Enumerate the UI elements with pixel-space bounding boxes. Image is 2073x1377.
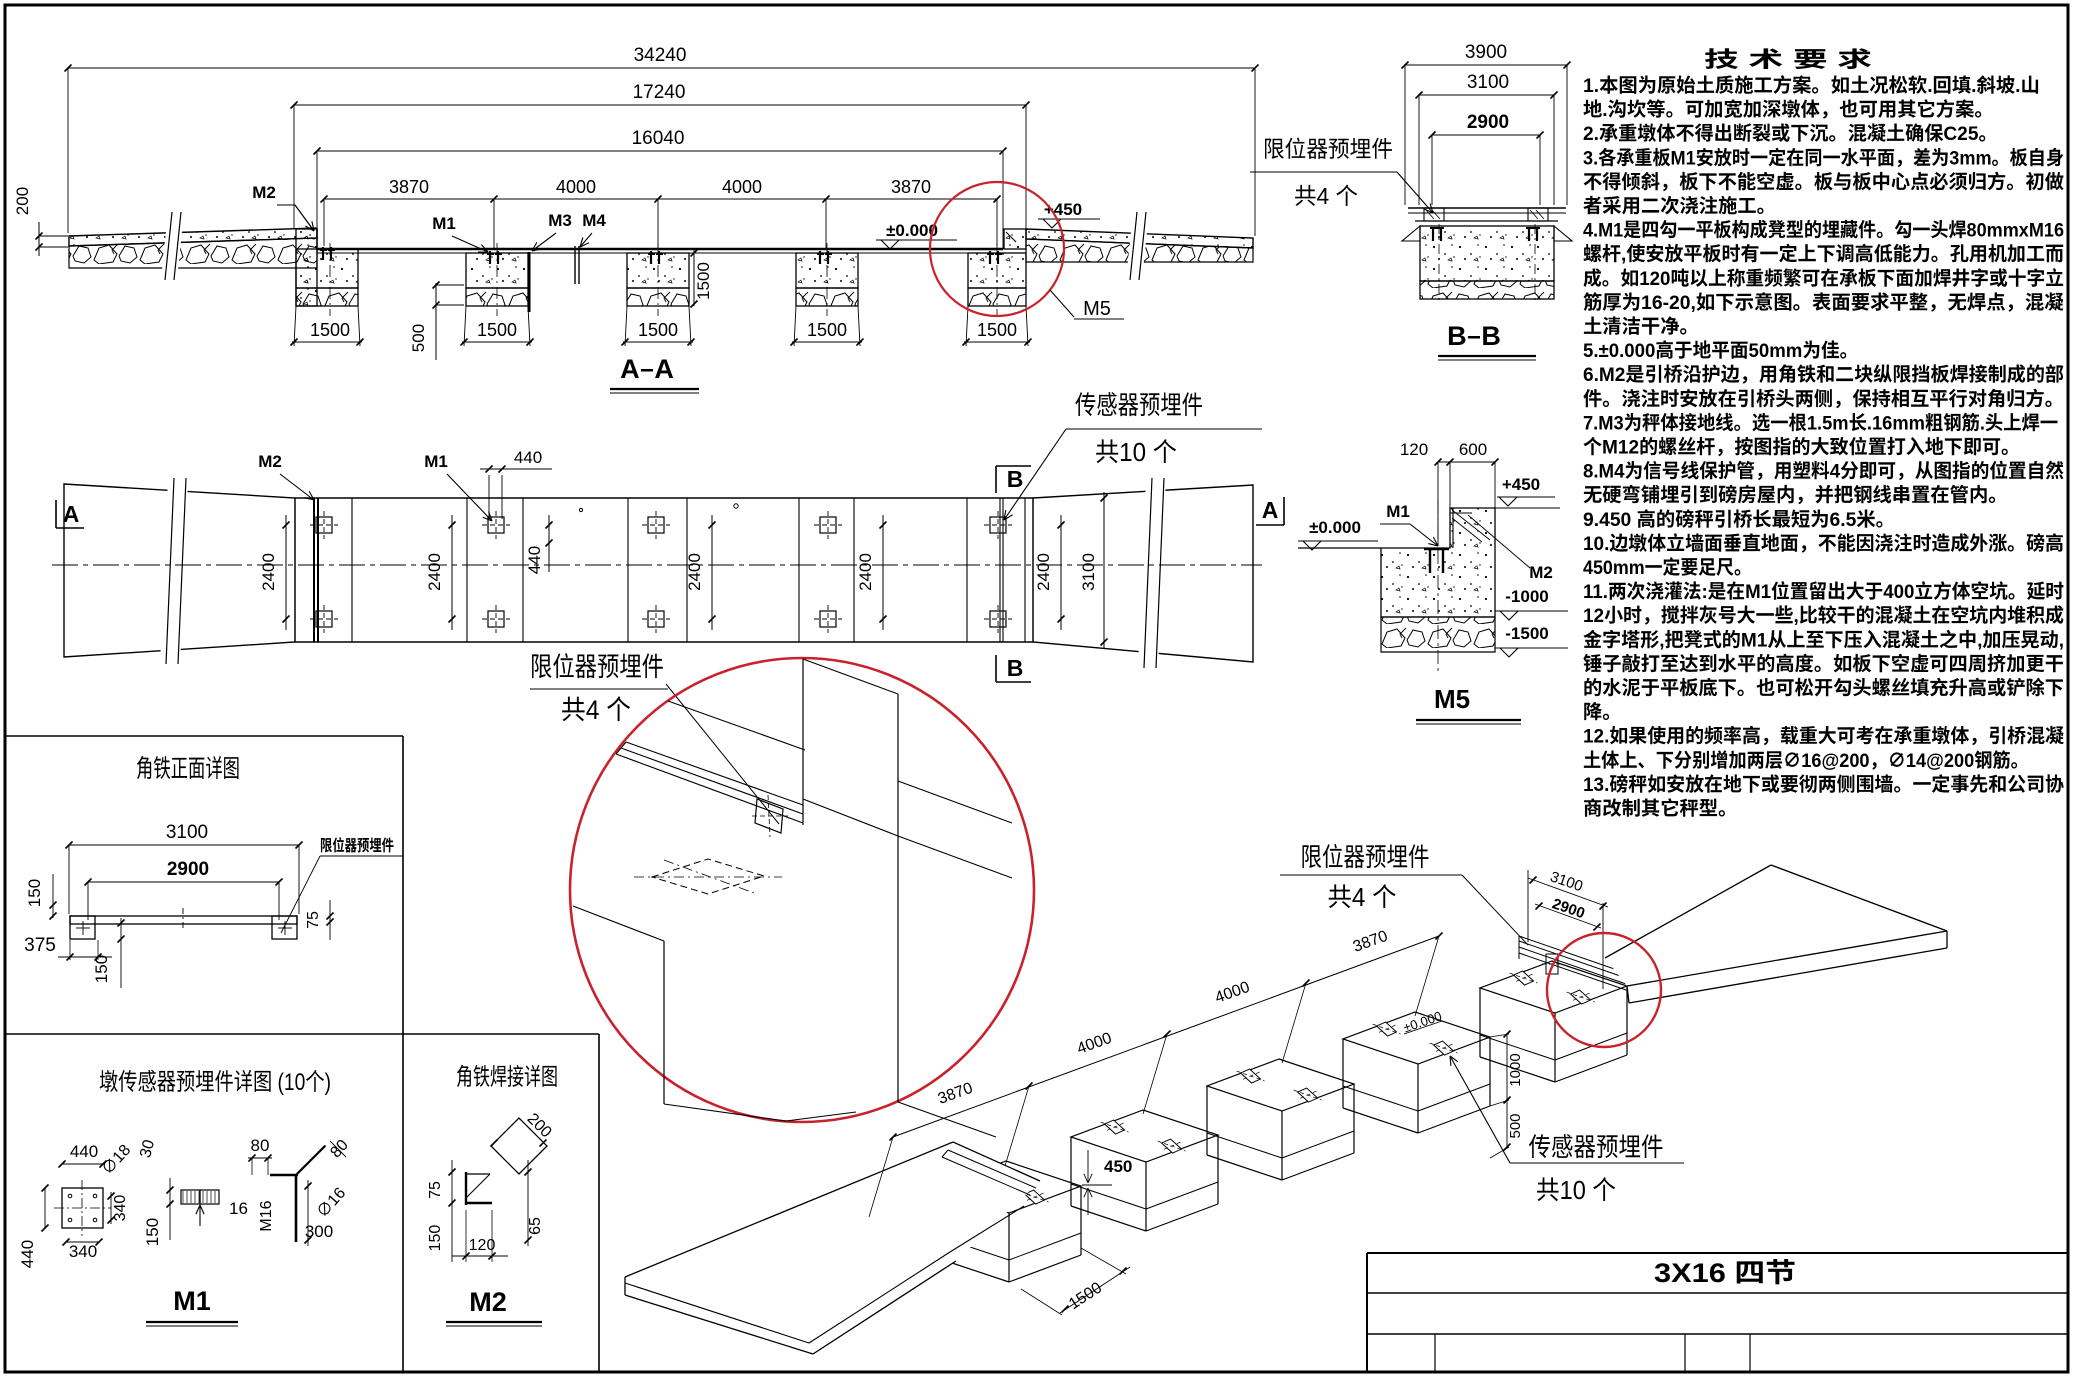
svg-text:500: 500 [404,324,429,352]
svg-text:角铁正面详图: 角铁正面详图 [136,749,240,785]
svg-text:B–B: B–B [1447,314,1501,353]
svg-text:16: 16 [229,1194,248,1219]
svg-text:M2: M2 [258,447,282,472]
svg-text:M16: M16 [252,1200,276,1231]
svg-text:440: 440 [13,1240,38,1268]
svg-text:-1000: -1000 [1505,582,1548,607]
svg-text:M2: M2 [469,1280,507,1319]
svg-text:A: A [63,495,80,529]
svg-text:3X16 四节: 3X16 四节 [1654,1251,1796,1290]
svg-text:M1: M1 [424,447,448,472]
svg-text:3870: 3870 [891,173,931,199]
svg-text:限位器预埋件: 限位器预埋件 [1301,837,1430,874]
svg-text:500: 500 [1504,1113,1525,1138]
svg-text:角铁焊接详图: 角铁焊接详图 [456,1057,558,1092]
svg-text:80: 80 [251,1131,270,1156]
svg-text:440: 440 [520,546,545,574]
svg-text:M3: M3 [548,206,572,231]
svg-text:商改制其它秤型。: 商改制其它秤型。 [1583,792,1737,821]
svg-text:120: 120 [1400,435,1428,460]
svg-text:75: 75 [299,911,323,929]
svg-text:3900: 3900 [1465,37,1507,64]
svg-text:-1500: -1500 [1505,619,1548,644]
svg-text:340: 340 [106,1195,130,1222]
svg-text:传感器预埋件: 传感器预埋件 [1529,1127,1664,1164]
svg-text:±0.000: ±0.000 [1309,513,1361,538]
svg-text:375: 375 [24,930,56,957]
svg-text:+450: +450 [1502,470,1540,495]
svg-text:2400: 2400 [420,553,445,591]
svg-text:1500: 1500 [310,316,350,342]
svg-text:2400: 2400 [254,553,279,591]
svg-text:3100: 3100 [166,817,208,844]
svg-text:1500: 1500 [807,316,847,342]
svg-text:A: A [1262,491,1279,525]
svg-text:B: B [1007,649,1024,683]
svg-text:限位器预埋件: 限位器预埋件 [530,645,664,684]
svg-text:A–A: A–A [620,347,674,386]
svg-text:限位器预埋件: 限位器预埋件 [320,832,394,856]
svg-text:150: 150 [20,879,45,907]
svg-text:65: 65 [521,1217,545,1235]
svg-text:共10 个: 共10 个 [1536,1170,1616,1207]
svg-text:M2: M2 [252,178,276,203]
svg-text:440: 440 [514,443,542,468]
svg-text:150: 150 [138,1218,163,1246]
svg-text:75: 75 [421,1181,445,1199]
svg-text:1500: 1500 [638,316,678,342]
svg-text:2400: 2400 [851,553,876,591]
svg-text:34240: 34240 [634,40,687,67]
svg-text:墩传感器预埋件详图 (10个): 墩传感器预埋件详图 (10个) [99,1062,331,1097]
svg-text:M2: M2 [1529,558,1553,583]
svg-text:600: 600 [1459,435,1487,460]
svg-text:M4: M4 [582,206,606,231]
svg-text:120: 120 [469,1231,496,1255]
svg-text:3870: 3870 [389,173,429,199]
svg-text:共4 个: 共4 个 [1294,177,1358,211]
svg-text:3100: 3100 [1074,553,1099,591]
svg-text:1000: 1000 [1504,1053,1525,1086]
svg-text:1500: 1500 [689,262,714,300]
svg-text:2900: 2900 [167,854,209,881]
svg-text:M1: M1 [432,209,456,234]
svg-text:1500: 1500 [477,316,517,342]
svg-text:的水泥于平板底下。也可松开勾头螺丝填充升高或铲除下: 的水泥于平板底下。也可松开勾头螺丝填充升高或铲除下 [1583,672,2064,701]
svg-text:4000: 4000 [556,173,596,199]
svg-text:300: 300 [305,1217,333,1242]
svg-text:440: 440 [70,1137,98,1162]
svg-text:150: 150 [87,955,112,983]
svg-text:17240: 17240 [633,77,686,104]
svg-text:3100: 3100 [1467,67,1509,94]
svg-text:传感器预埋件: 传感器预埋件 [1075,385,1203,422]
svg-text:340: 340 [69,1237,97,1262]
svg-text:16040: 16040 [632,123,685,150]
svg-text:2900: 2900 [1467,107,1509,134]
svg-text:4000: 4000 [722,173,762,199]
svg-text:2400: 2400 [680,553,705,591]
svg-text:共4 个: 共4 个 [1328,877,1397,914]
svg-text:M1: M1 [1386,497,1410,522]
svg-text:共10 个: 共10 个 [1095,432,1177,469]
svg-text:2400: 2400 [1029,553,1054,591]
svg-text:限位器预埋件: 限位器预埋件 [1263,130,1393,164]
svg-text:M1: M1 [173,1279,211,1318]
svg-text:M5: M5 [1434,679,1470,716]
svg-text:B: B [1007,460,1024,494]
svg-text:200: 200 [8,187,33,215]
svg-text:1500: 1500 [977,316,1017,342]
svg-text:M5: M5 [1083,292,1111,321]
svg-text:共4 个: 共4 个 [561,688,631,727]
svg-text:150: 150 [421,1225,445,1252]
